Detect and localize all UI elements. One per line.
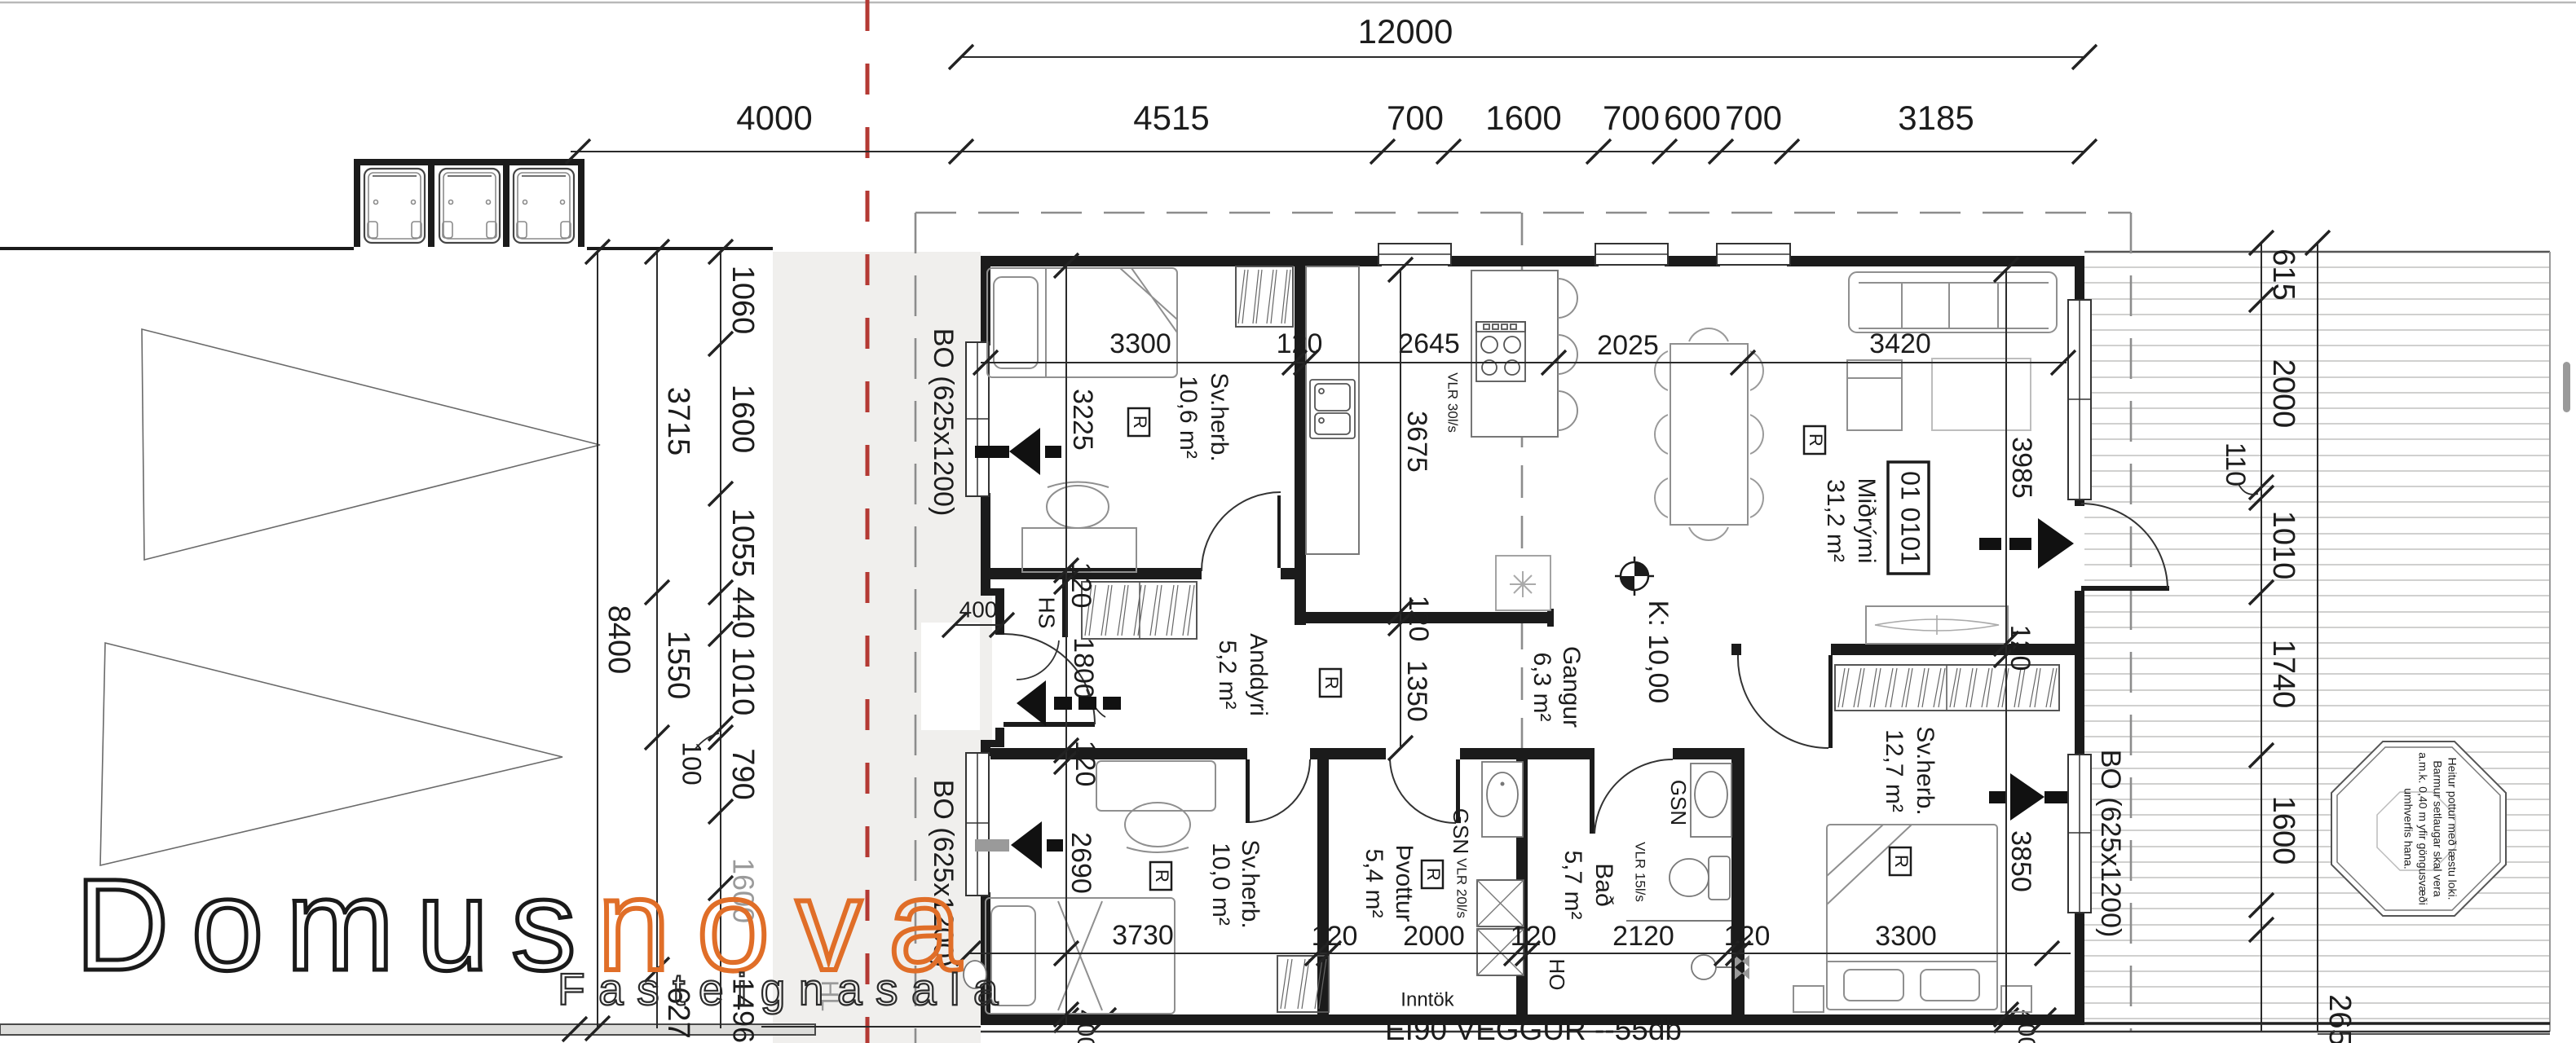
- svg-text:31,2 m²: 31,2 m²: [1822, 479, 1849, 562]
- svg-text:K: 10,00: K: 10,00: [1643, 601, 1674, 704]
- svg-text:1740: 1740: [2266, 640, 2300, 709]
- svg-text:615: 615: [2266, 249, 2300, 300]
- svg-text:HO: HO: [1545, 959, 1569, 991]
- svg-text:5,4 m²: 5,4 m²: [1361, 848, 1387, 918]
- svg-text:HS: HS: [1034, 597, 1060, 629]
- svg-text:12,7 m²: 12,7 m²: [1881, 729, 1908, 812]
- svg-text:120: 120: [1511, 921, 1557, 952]
- svg-text:4515: 4515: [1133, 99, 1209, 137]
- svg-text:1600: 1600: [2266, 796, 2300, 865]
- svg-text:5,2 m²: 5,2 m²: [1214, 640, 1241, 709]
- svg-text:BO (625x1200): BO (625x1200): [2095, 750, 2126, 938]
- svg-text:120: 120: [2005, 625, 2036, 671]
- svg-text:790: 790: [726, 748, 760, 799]
- svg-text:1600: 1600: [726, 385, 760, 454]
- svg-text:600: 600: [1664, 99, 1721, 137]
- svg-text:3730: 3730: [1112, 920, 1174, 951]
- svg-text:GSN: GSN: [1449, 808, 1473, 854]
- svg-text:Bað: Bað: [1590, 863, 1617, 906]
- svg-text:Gangur: Gangur: [1558, 646, 1585, 728]
- svg-text:a.m.k. 0,40 m yfir göngusvæði: a.m.k. 0,40 m yfir göngusvæði: [2416, 752, 2429, 905]
- svg-text:VLR 20l/s: VLR 20l/s: [1454, 858, 1470, 918]
- svg-text:120: 120: [1403, 596, 1434, 642]
- svg-text:Anddyri: Anddyri: [1245, 633, 1272, 716]
- svg-text:Barmur setlaugar skal vera: Barmur setlaugar skal vera: [2431, 760, 2444, 897]
- svg-text:400: 400: [959, 596, 998, 622]
- svg-text:100: 100: [677, 742, 707, 785]
- svg-text:700: 700: [1725, 99, 1782, 137]
- svg-text:2120: 2120: [1612, 921, 1674, 952]
- svg-text:Sv.herb.: Sv.herb.: [1206, 372, 1233, 462]
- svg-text:12000: 12000: [1358, 12, 1453, 51]
- svg-text:700: 700: [1387, 99, 1444, 137]
- svg-text:GSN: GSN: [1666, 780, 1691, 825]
- svg-text:R: R: [1891, 855, 1912, 868]
- svg-text:Heitur pottur með læstu loki.: Heitur pottur með læstu loki.: [2446, 757, 2459, 900]
- svg-text:265: 265: [2322, 994, 2357, 1043]
- svg-text:120: 120: [1312, 921, 1358, 952]
- svg-text:R: R: [1130, 416, 1150, 429]
- svg-text:R: R: [1321, 676, 1342, 689]
- svg-text:Sv.herb.: Sv.herb.: [1237, 839, 1264, 929]
- svg-text:3225: 3225: [1067, 389, 1098, 451]
- svg-text:2025: 2025: [1597, 330, 1659, 361]
- svg-text:3300: 3300: [1875, 921, 1937, 952]
- svg-text:1060: 1060: [726, 266, 760, 335]
- svg-text:2000: 2000: [1403, 921, 1465, 952]
- svg-text:01 0101: 01 0101: [1896, 471, 1925, 566]
- svg-text:Fasteignasala: Fasteignasala: [558, 964, 1012, 1014]
- svg-text:Þvottur: Þvottur: [1391, 844, 1418, 922]
- svg-text:10,6 m²: 10,6 m²: [1175, 376, 1202, 459]
- svg-text:R: R: [1423, 868, 1444, 881]
- svg-text:R: R: [1152, 869, 1172, 882]
- svg-text:3420: 3420: [1869, 328, 1931, 359]
- svg-text:3850: 3850: [2005, 830, 2036, 892]
- svg-text:2645: 2645: [1398, 328, 1460, 359]
- svg-text:3715: 3715: [661, 387, 695, 456]
- svg-text:440: 440: [726, 587, 760, 638]
- svg-text:BO (625x1200): BO (625x1200): [928, 328, 959, 517]
- svg-text:1010: 1010: [726, 647, 760, 716]
- svg-text:VLR 15l/s: VLR 15l/s: [1633, 842, 1648, 902]
- svg-text:EI90 VEGGUR --55db: EI90 VEGGUR --55db: [1385, 1013, 1682, 1043]
- svg-text:3675: 3675: [1401, 411, 1432, 473]
- svg-text:1550: 1550: [661, 631, 695, 700]
- svg-text:3300: 3300: [1109, 328, 1171, 359]
- svg-text:4000: 4000: [736, 99, 812, 137]
- svg-text:R: R: [1806, 433, 1826, 447]
- svg-text:1350: 1350: [1401, 660, 1432, 722]
- svg-text:120: 120: [1724, 921, 1771, 952]
- svg-text:VLR 30l/s: VLR 30l/s: [1445, 372, 1461, 433]
- svg-text:1600: 1600: [1485, 99, 1561, 137]
- svg-text:10,0 m²: 10,0 m²: [1207, 843, 1234, 926]
- svg-text:3185: 3185: [1898, 99, 1974, 137]
- svg-text:Domus: Domus: [75, 852, 598, 997]
- svg-text:8400: 8400: [602, 605, 636, 675]
- svg-text:1010: 1010: [2266, 511, 2300, 580]
- svg-text:700: 700: [1603, 99, 1660, 137]
- svg-text:1800: 1800: [1068, 637, 1099, 699]
- svg-text:3985: 3985: [2006, 437, 2037, 499]
- svg-text:5,7 m²: 5,7 m²: [1559, 850, 1586, 919]
- svg-text:120: 120: [1065, 562, 1096, 609]
- svg-text:Sv.herb.: Sv.herb.: [1912, 726, 1939, 816]
- svg-text:110: 110: [2220, 442, 2251, 486]
- svg-text:2690: 2690: [1065, 832, 1096, 894]
- svg-text:umhverfis hana.: umhverfis hana.: [2402, 788, 2415, 869]
- svg-text:Inntök: Inntök: [1400, 988, 1454, 1010]
- svg-text:2000: 2000: [2266, 359, 2300, 429]
- svg-text:120: 120: [1277, 328, 1323, 359]
- svg-text:6,3 m²: 6,3 m²: [1528, 652, 1555, 721]
- svg-text:120: 120: [1070, 741, 1101, 787]
- svg-text:1055: 1055: [726, 508, 760, 578]
- svg-text:Miðrými: Miðrými: [1853, 478, 1880, 564]
